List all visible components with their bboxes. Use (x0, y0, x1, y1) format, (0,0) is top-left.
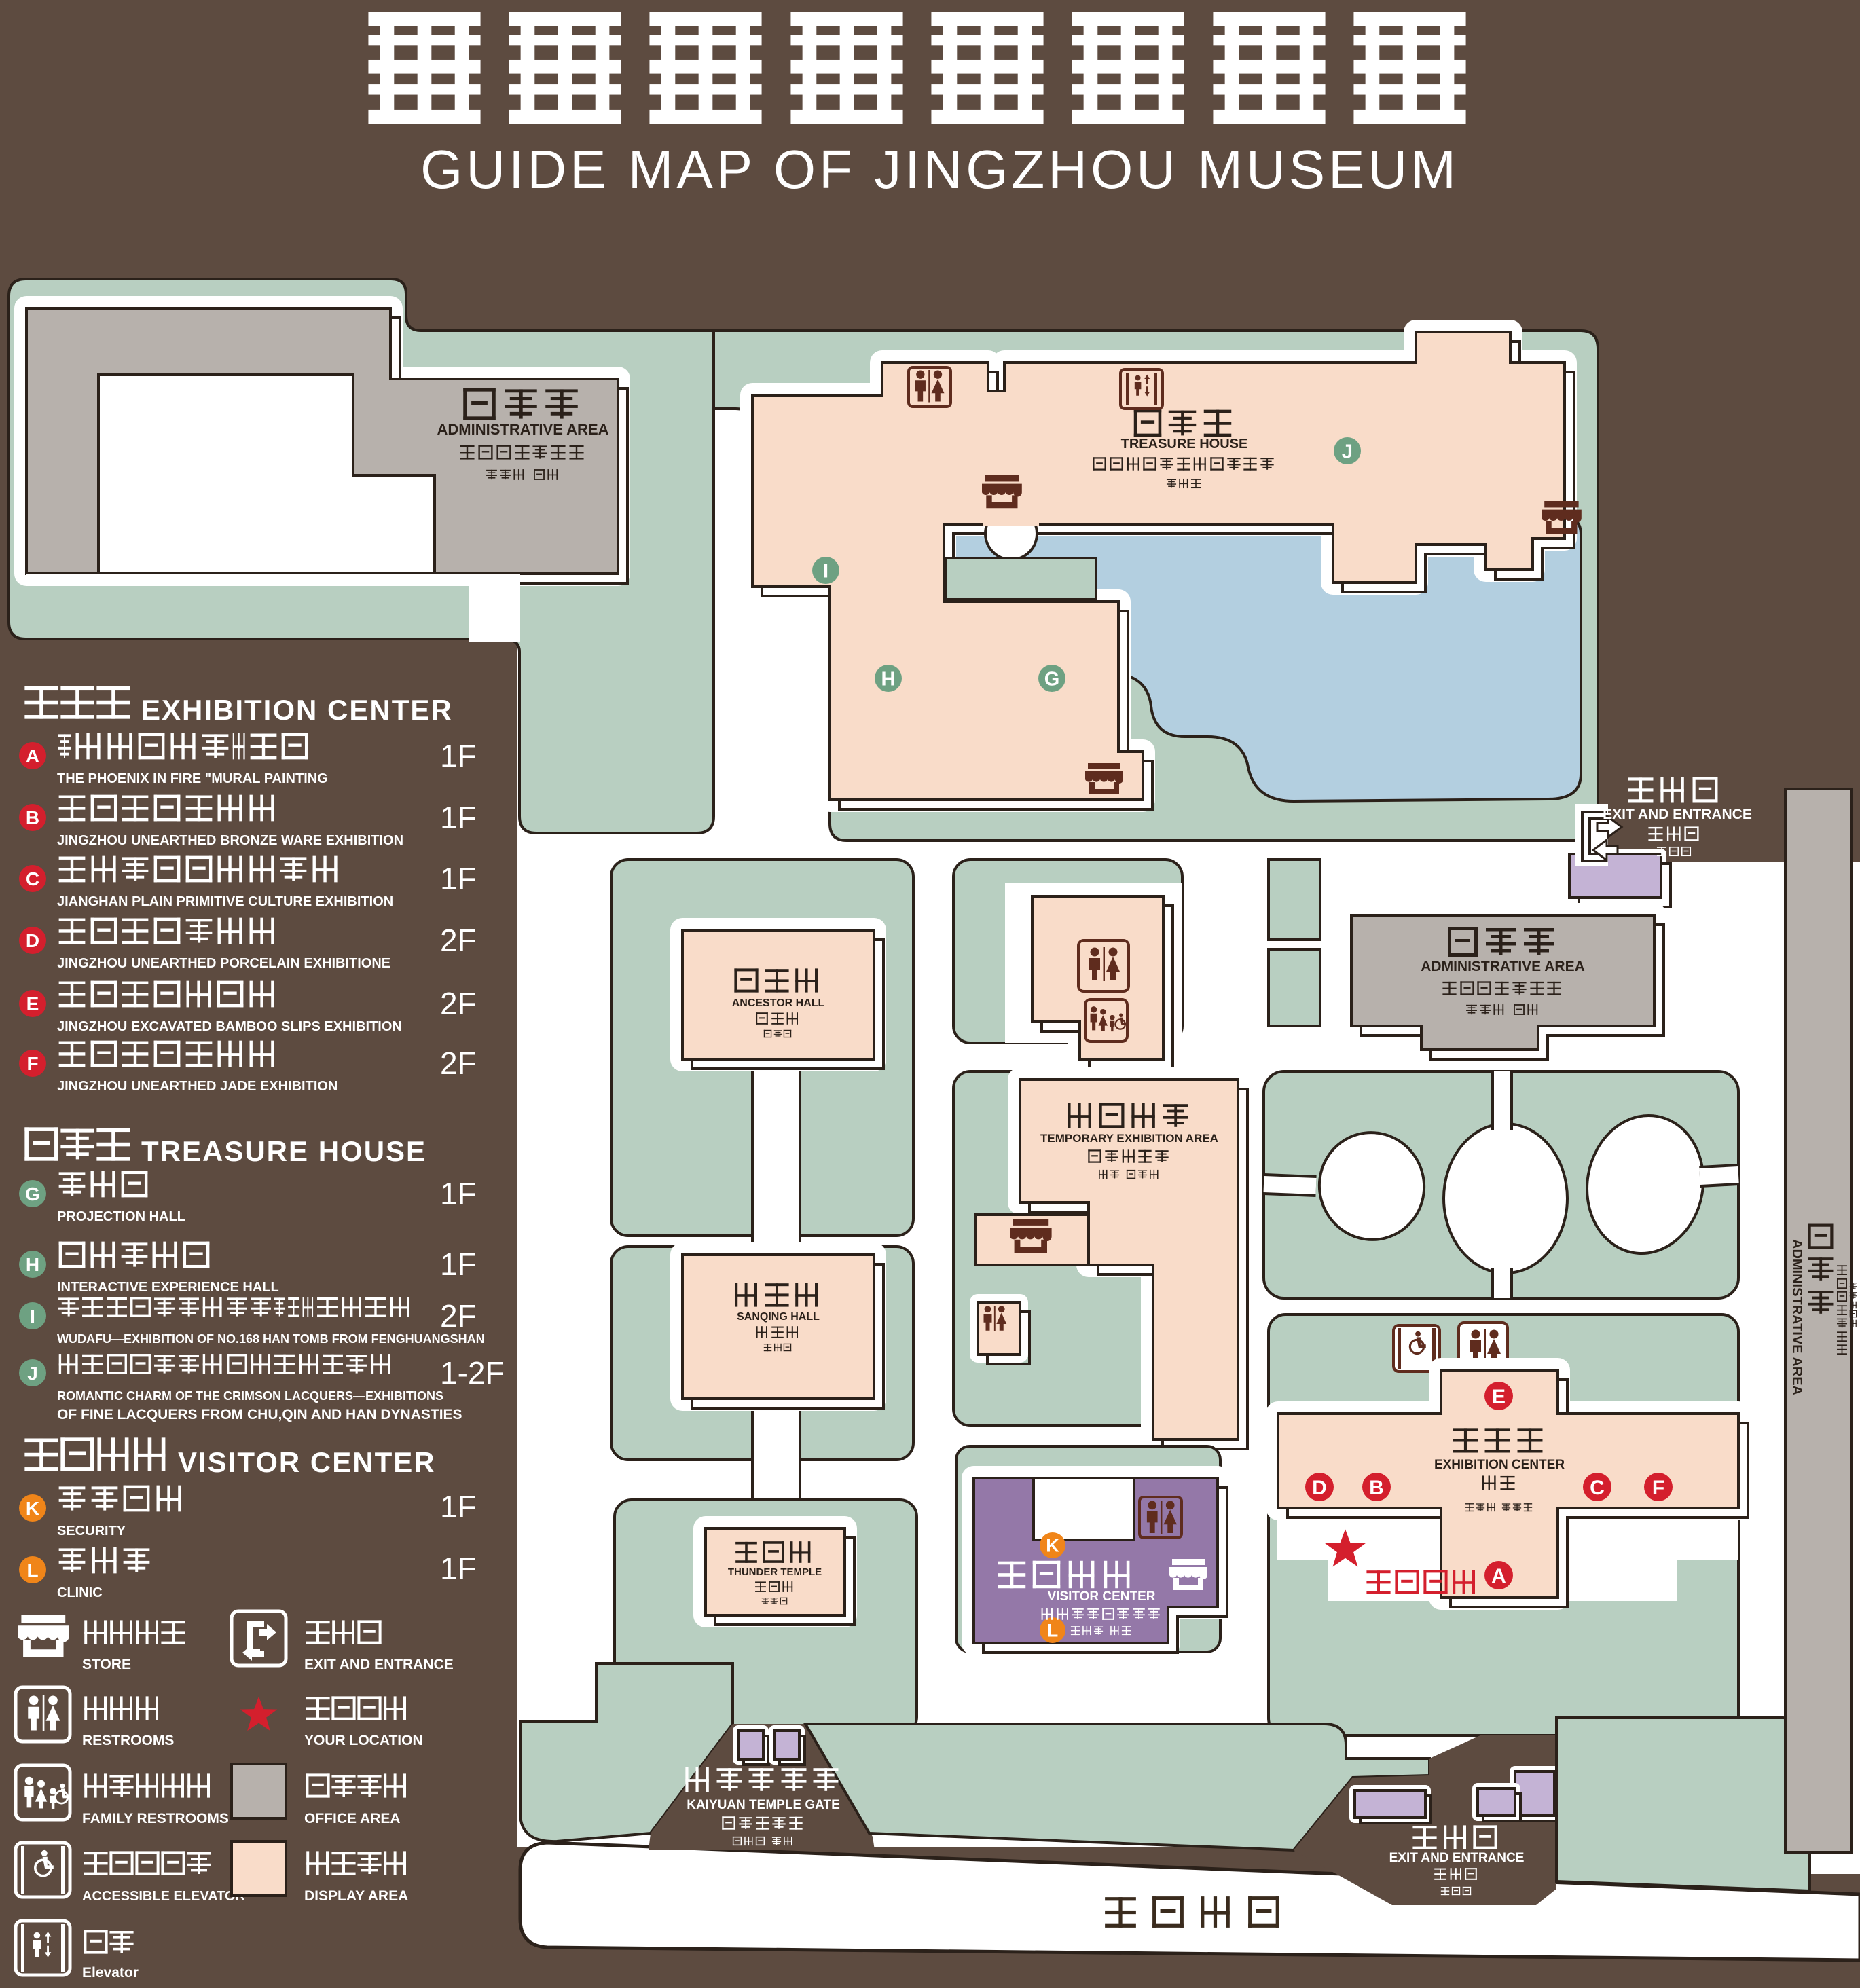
svg-text:JINGZHOU UNEARTHED BRONZE WARE: JINGZHOU UNEARTHED BRONZE WARE EXHIBITIO… (57, 833, 403, 848)
svg-text:EXHIBITION CENTER: EXHIBITION CENTER (1434, 1458, 1565, 1472)
svg-text:H: H (26, 1254, 39, 1275)
svg-text:1F: 1F (440, 1489, 477, 1524)
svg-text:B: B (1369, 1477, 1384, 1499)
svg-text:1-2F: 1-2F (440, 1355, 505, 1391)
svg-text:ROMANTIC CHARM OF THE CRIMSON: ROMANTIC CHARM OF THE CRIMSON LACQUERS—E… (57, 1389, 443, 1403)
svg-text:G: G (25, 1183, 40, 1204)
svg-text:ACCESSIBLE ELEVATOR: ACCESSIBLE ELEVATOR (82, 1889, 246, 1904)
svg-text:GUIDE MAP OF JINGZHOU MUSEUM: GUIDE MAP OF JINGZHOU MUSEUM (420, 139, 1459, 200)
svg-text:L: L (26, 1560, 38, 1581)
svg-text:1F: 1F (440, 861, 477, 896)
svg-text:YOUR LOCATION: YOUR LOCATION (304, 1733, 423, 1748)
svg-text:JIANGHAN PLAIN PRIMITIVE CULTU: JIANGHAN PLAIN PRIMITIVE CULTURE EXHIBIT… (57, 894, 393, 909)
svg-text:I: I (30, 1306, 35, 1327)
svg-text:JINGZHOU UNEARTHED PORCELAIN E: JINGZHOU UNEARTHED PORCELAIN EXHIBITIONE (57, 956, 390, 971)
svg-text:I: I (823, 560, 828, 582)
svg-text:JINGZHOU UNEARTHED JADE EXHIBI: JINGZHOU UNEARTHED JADE EXHIBITION (57, 1079, 338, 1094)
svg-text:F: F (26, 1053, 38, 1074)
svg-text:VISITOR CENTER: VISITOR CENTER (1047, 1589, 1155, 1604)
svg-text:ADMINISTRATIVE AREA: ADMINISTRATIVE AREA (1421, 959, 1585, 974)
svg-text:E: E (1492, 1386, 1506, 1408)
svg-text:1F: 1F (440, 1176, 477, 1211)
svg-text:OFFICE AREA: OFFICE AREA (304, 1811, 401, 1826)
svg-text:B: B (26, 807, 39, 828)
svg-text:J: J (1342, 441, 1353, 462)
svg-text:K: K (26, 1498, 39, 1519)
svg-text:L: L (1047, 1621, 1059, 1641)
svg-text:D: D (26, 930, 39, 951)
svg-text:F: F (1652, 1477, 1664, 1499)
svg-text:SECURITY: SECURITY (57, 1524, 126, 1539)
svg-text:THUNDER TEMPLE: THUNDER TEMPLE (728, 1566, 822, 1578)
svg-text:A: A (1491, 1565, 1506, 1587)
svg-text:RESTROOMS: RESTROOMS (82, 1733, 174, 1748)
svg-text:1F: 1F (440, 738, 477, 773)
svg-text:SANQING HALL: SANQING HALL (737, 1311, 820, 1323)
svg-text:ADMINISTRATIVE AREA: ADMINISTRATIVE AREA (1789, 1239, 1804, 1395)
svg-text:H: H (881, 668, 896, 690)
svg-text:FAMILY RESTROOMS: FAMILY RESTROOMS (82, 1811, 229, 1826)
svg-text:1F: 1F (440, 1247, 477, 1282)
svg-text:C: C (1590, 1477, 1605, 1499)
svg-text:Elevator: Elevator (82, 1965, 139, 1981)
svg-text:PROJECTION HALL: PROJECTION HALL (57, 1209, 185, 1224)
svg-text:2F: 2F (440, 923, 477, 958)
svg-text:A: A (26, 745, 39, 767)
svg-text:DISPLAY AREA: DISPLAY AREA (304, 1888, 408, 1904)
svg-text:KAIYUAN TEMPLE GATE: KAIYUAN TEMPLE GATE (687, 1798, 840, 1812)
svg-text:E: E (26, 993, 39, 1014)
svg-text:2F: 2F (440, 1046, 477, 1081)
svg-text:2F: 2F (440, 1298, 477, 1333)
svg-text:D: D (1312, 1477, 1327, 1499)
svg-text:TREASURE HOUSE: TREASURE HOUSE (141, 1135, 426, 1167)
svg-text:STORE: STORE (82, 1657, 131, 1672)
svg-text:ANCESTOR HALL: ANCESTOR HALL (732, 997, 825, 1009)
svg-text:C: C (26, 868, 39, 889)
svg-text:WUDAFU—EXHIBITION OF NO.168 HA: WUDAFU—EXHIBITION OF NO.168 HAN TOMB FRO… (57, 1332, 485, 1346)
svg-text:EXHIBITION CENTER: EXHIBITION CENTER (141, 694, 453, 726)
svg-text:EXIT AND ENTRANCE: EXIT AND ENTRANCE (1603, 807, 1752, 822)
svg-text:JINGZHOU EXCAVATED BAMBOO SLIP: JINGZHOU EXCAVATED BAMBOO SLIPS EXHIBITI… (57, 1019, 402, 1034)
svg-text:J: J (27, 1363, 38, 1384)
svg-text:CLINIC: CLINIC (57, 1585, 103, 1600)
svg-text:1F: 1F (440, 1551, 477, 1586)
svg-text:THE PHOENIX IN FIRE "MURAL PAI: THE PHOENIX IN FIRE "MURAL PAINTING (57, 771, 328, 786)
svg-text:EXIT AND ENTRANCE: EXIT AND ENTRANCE (304, 1657, 454, 1672)
svg-text:INTERACTIVE EXPERIENCE HALL: INTERACTIVE EXPERIENCE HALL (57, 1280, 279, 1295)
svg-text:TEMPORARY EXHIBITION AREA: TEMPORARY EXHIBITION AREA (1040, 1132, 1218, 1145)
svg-text:VISITOR CENTER: VISITOR CENTER (178, 1446, 436, 1478)
svg-text:G: G (1044, 668, 1060, 690)
svg-text:1F: 1F (440, 800, 477, 835)
svg-text:EXIT AND ENTRANCE: EXIT AND ENTRANCE (1389, 1851, 1525, 1865)
svg-text:K: K (1046, 1536, 1059, 1556)
svg-text:OF FINE LACQUERS FROM CHU,QIN: OF FINE LACQUERS FROM CHU,QIN AND HAN DY… (57, 1407, 462, 1422)
svg-text:ADMINISTRATIVE AREA: ADMINISTRATIVE AREA (437, 421, 609, 438)
svg-text:2F: 2F (440, 986, 477, 1021)
svg-text:TREASURE HOUSE: TREASURE HOUSE (1121, 437, 1248, 452)
